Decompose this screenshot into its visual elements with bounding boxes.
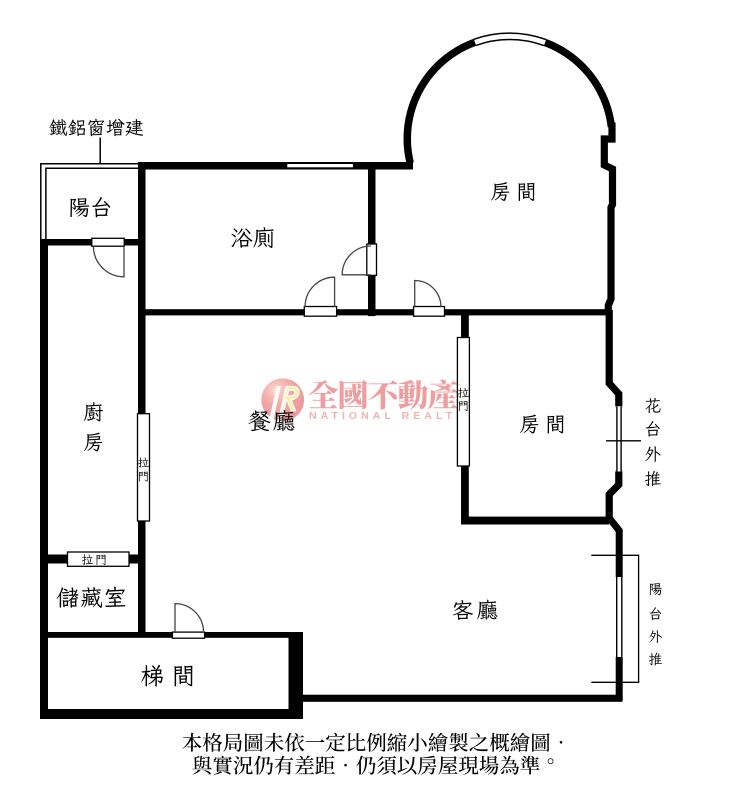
svg-text:NATIONAL REALTY: NATIONAL REALTY [309, 410, 467, 422]
